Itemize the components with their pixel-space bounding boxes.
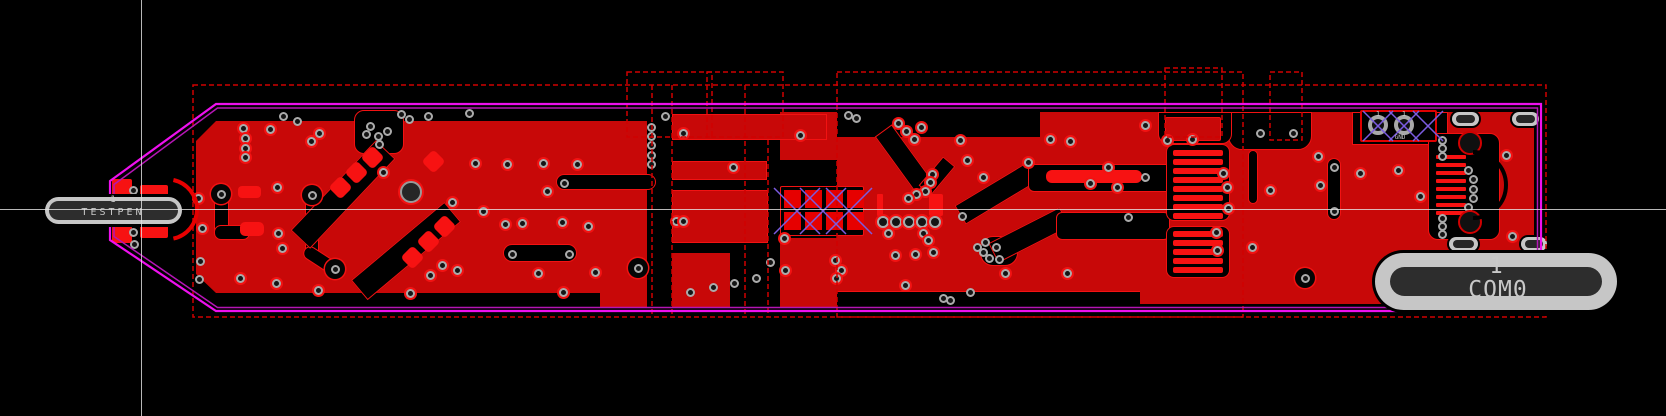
via [1124,213,1133,222]
copper-pad [1436,171,1466,175]
via [453,266,462,275]
via [308,191,317,200]
via [465,109,474,118]
via [379,168,388,177]
via [129,228,138,237]
via [647,151,656,160]
via [924,236,933,245]
via [852,114,861,123]
via [929,216,941,228]
via [979,173,988,182]
via [1086,179,1095,188]
copper-pad [1436,187,1466,191]
via [272,279,281,288]
via [647,141,656,150]
via [1223,183,1232,192]
via [981,238,990,247]
via [1464,166,1473,175]
via [766,258,775,267]
testpen-pad-label: TESTPEN [81,207,144,218]
copper-zone [196,121,647,293]
via [647,132,656,141]
via [958,212,967,221]
via [752,274,761,283]
copper-pad [672,190,768,243]
via [1469,175,1478,184]
via [921,187,930,196]
via [314,286,323,295]
via [129,186,138,195]
drill-hole [1458,131,1482,155]
via [195,275,204,284]
via [543,187,552,196]
drill-hole [400,181,422,203]
via [558,218,567,227]
via [963,156,972,165]
via [985,254,994,263]
via [647,123,656,132]
via [508,250,517,259]
copper-pad [784,212,801,230]
via [926,178,935,187]
via [573,160,582,169]
via [362,130,371,139]
copper-pad [929,194,943,216]
via [837,266,846,275]
smd-pill-pad [1512,112,1539,126]
via [315,129,324,138]
via [278,244,287,253]
trace-cutout [1056,212,1170,240]
copper-pad [805,190,822,208]
via [1024,158,1033,167]
via [956,136,965,145]
via [1248,243,1257,252]
via [438,261,447,270]
via [426,271,435,280]
via [448,198,457,207]
drill-hole [1394,115,1414,135]
via [730,279,739,288]
via [709,283,718,292]
via [266,125,275,134]
copper-pad [1173,168,1223,174]
smd-pill-pad [1521,237,1547,251]
via [236,274,245,283]
copper-pad [1173,195,1223,201]
via [241,144,250,153]
copper-pad [1436,163,1466,167]
via [1213,246,1222,255]
via [1330,163,1339,172]
via [1256,129,1265,138]
via [331,265,340,274]
via [780,234,789,243]
via [565,250,574,259]
copper-pad [826,190,843,208]
via [1113,183,1122,192]
via [539,159,548,168]
via [1001,269,1010,278]
via [1163,136,1172,145]
via [479,207,488,216]
trace-cutout [556,174,656,190]
via [686,288,695,297]
via [890,216,902,228]
via [1502,151,1511,160]
via [679,129,688,138]
via [946,296,955,305]
via [274,229,283,238]
via [917,123,926,132]
trace-cutout [837,291,1140,311]
copper-pad [877,194,883,216]
via [130,240,139,249]
via [679,217,688,226]
via [1356,169,1365,178]
copper-pad [140,224,168,238]
copper-pad [1173,258,1223,264]
via [891,251,900,260]
via [196,257,205,266]
via [1301,274,1310,283]
copper-pad [1436,203,1466,207]
via [929,248,938,257]
via [903,216,915,228]
via [910,135,919,144]
via [273,183,282,192]
via [406,289,415,298]
copper-pad [1173,267,1223,273]
pad-label: GND [1395,134,1406,141]
via [1224,204,1233,213]
com0-pad-number: 1 [1489,254,1502,279]
copper-pad [1436,195,1466,199]
drill-hole [1368,115,1388,135]
drill-hole [1458,210,1482,234]
copper-pad [826,212,843,230]
via [241,134,250,143]
via [661,112,670,121]
via [383,127,392,136]
via [902,127,911,136]
via [1212,228,1221,237]
copper-pad [784,190,801,208]
copper-pad [1173,240,1223,246]
via [634,264,643,273]
copper-pad [240,222,264,236]
via [1046,135,1055,144]
via [518,219,527,228]
via [591,268,600,277]
via [239,124,248,133]
via [995,255,1004,264]
via [1266,186,1275,195]
via [916,216,928,228]
via [901,281,910,290]
via [1219,169,1228,178]
via [1188,135,1197,144]
via [560,179,569,188]
com0-pad-label: COM0 [1468,277,1527,303]
via [501,220,510,229]
via [911,250,920,259]
via [1063,269,1072,278]
testpen-pad-number: 1 [110,195,115,205]
copper-pad [847,190,864,208]
via [1104,163,1113,172]
via [912,190,921,199]
via [832,274,841,283]
via [966,288,975,297]
via [894,119,903,128]
via [584,222,593,231]
trace-cutout [1228,112,1312,150]
via [1289,129,1298,138]
via [1508,232,1517,241]
via [194,194,203,203]
copper-pad [1436,179,1466,183]
via [307,137,316,146]
copper-pad [1173,204,1223,210]
via [796,131,805,140]
copper-pad [1173,159,1223,165]
via [1316,181,1325,190]
via [293,117,302,126]
via [877,216,889,228]
pad-label: 1 [1376,110,1380,118]
via [375,140,384,149]
pad-label: 1 [1402,110,1406,118]
via [1469,194,1478,203]
copper-pad [1173,186,1223,192]
via [781,266,790,275]
via [405,115,414,124]
via [1394,166,1403,175]
via [729,163,738,172]
via [647,160,656,169]
via [1141,173,1150,182]
copper-pad [847,212,864,230]
via [992,243,1001,252]
via [1438,152,1447,161]
via [559,288,568,297]
via [884,229,893,238]
via [904,194,913,203]
via [1469,185,1478,194]
via [1416,192,1425,201]
copper-pad [1173,213,1223,219]
copper-pad [238,186,261,198]
copper-pad [672,161,767,180]
copper-pad [1173,177,1223,183]
via [534,269,543,278]
via [1066,137,1075,146]
via [397,110,406,119]
via [1438,230,1447,239]
copper-pad [805,212,822,230]
via [1141,121,1150,130]
via [217,190,226,199]
via [471,159,480,168]
via [503,160,512,169]
smd-pill-pad [1449,237,1478,251]
pcb-canvas[interactable]: 1 TESTPEN 1 COM0 11GND [0,0,1666,416]
copper-zone [672,253,730,308]
copper-pad [1173,150,1223,156]
smd-pill-pad [1452,112,1479,126]
via [424,112,433,121]
via [241,153,250,162]
via [1330,207,1339,216]
via [1314,152,1323,161]
via [198,224,207,233]
via [831,256,840,265]
trace-cutout [1248,150,1258,204]
via [279,112,288,121]
